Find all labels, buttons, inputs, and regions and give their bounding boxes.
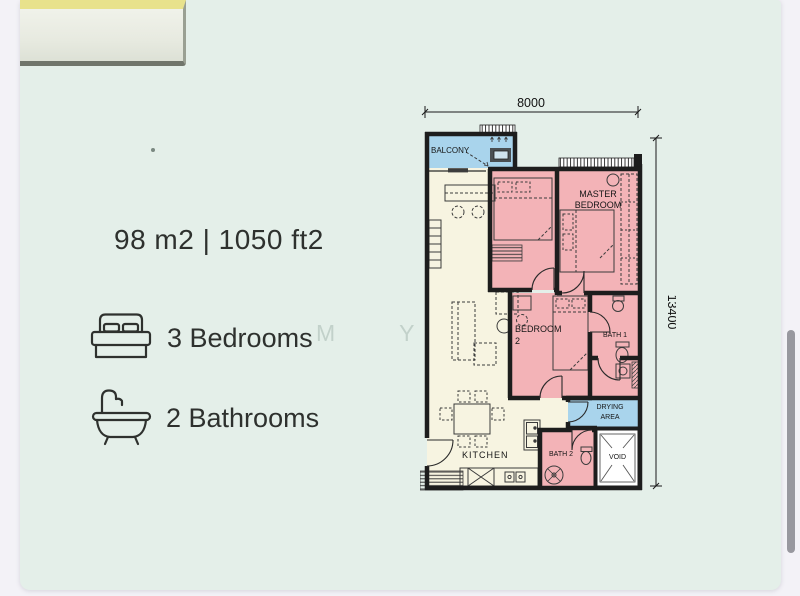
bathrooms-label: 2 Bathrooms: [166, 403, 319, 434]
room-label-master-1: MASTER: [579, 189, 617, 199]
room-label-void: VOID: [609, 454, 626, 461]
room-label-bath1: BATH 1: [603, 332, 627, 339]
bathtub-icon: [89, 385, 155, 452]
top-left-tab[interactable]: [20, 0, 186, 66]
room-label-master-2: BEDROOM: [575, 200, 622, 210]
unit-area-text: 98 m2 | 1050 ft2: [114, 224, 324, 256]
bedrooms-label: 3 Bedrooms: [167, 323, 313, 354]
room-label-drying-1: DRYING: [596, 404, 623, 411]
room-label-bedroom2-2: 2: [515, 336, 520, 346]
floor-plan: 8000 13400: [420, 90, 676, 507]
dimension-height-label: 13400: [665, 295, 676, 330]
dimension-width-label: 8000: [517, 96, 545, 110]
room-label-kitchen: KITCHEN: [462, 450, 509, 460]
page: { "window": { "background": "#f3f2f7", "…: [0, 0, 800, 596]
dust-speck: [151, 148, 155, 152]
room-label-bedroom2-1: BEDROOM: [515, 324, 562, 334]
room-label-balcony: BALCONY: [431, 146, 470, 155]
room-label-bath2: BATH 2: [549, 451, 573, 458]
bed-icon: [89, 311, 153, 368]
room-label-drying-2: AREA: [600, 414, 619, 421]
scrollbar-thumb[interactable]: [787, 330, 795, 553]
